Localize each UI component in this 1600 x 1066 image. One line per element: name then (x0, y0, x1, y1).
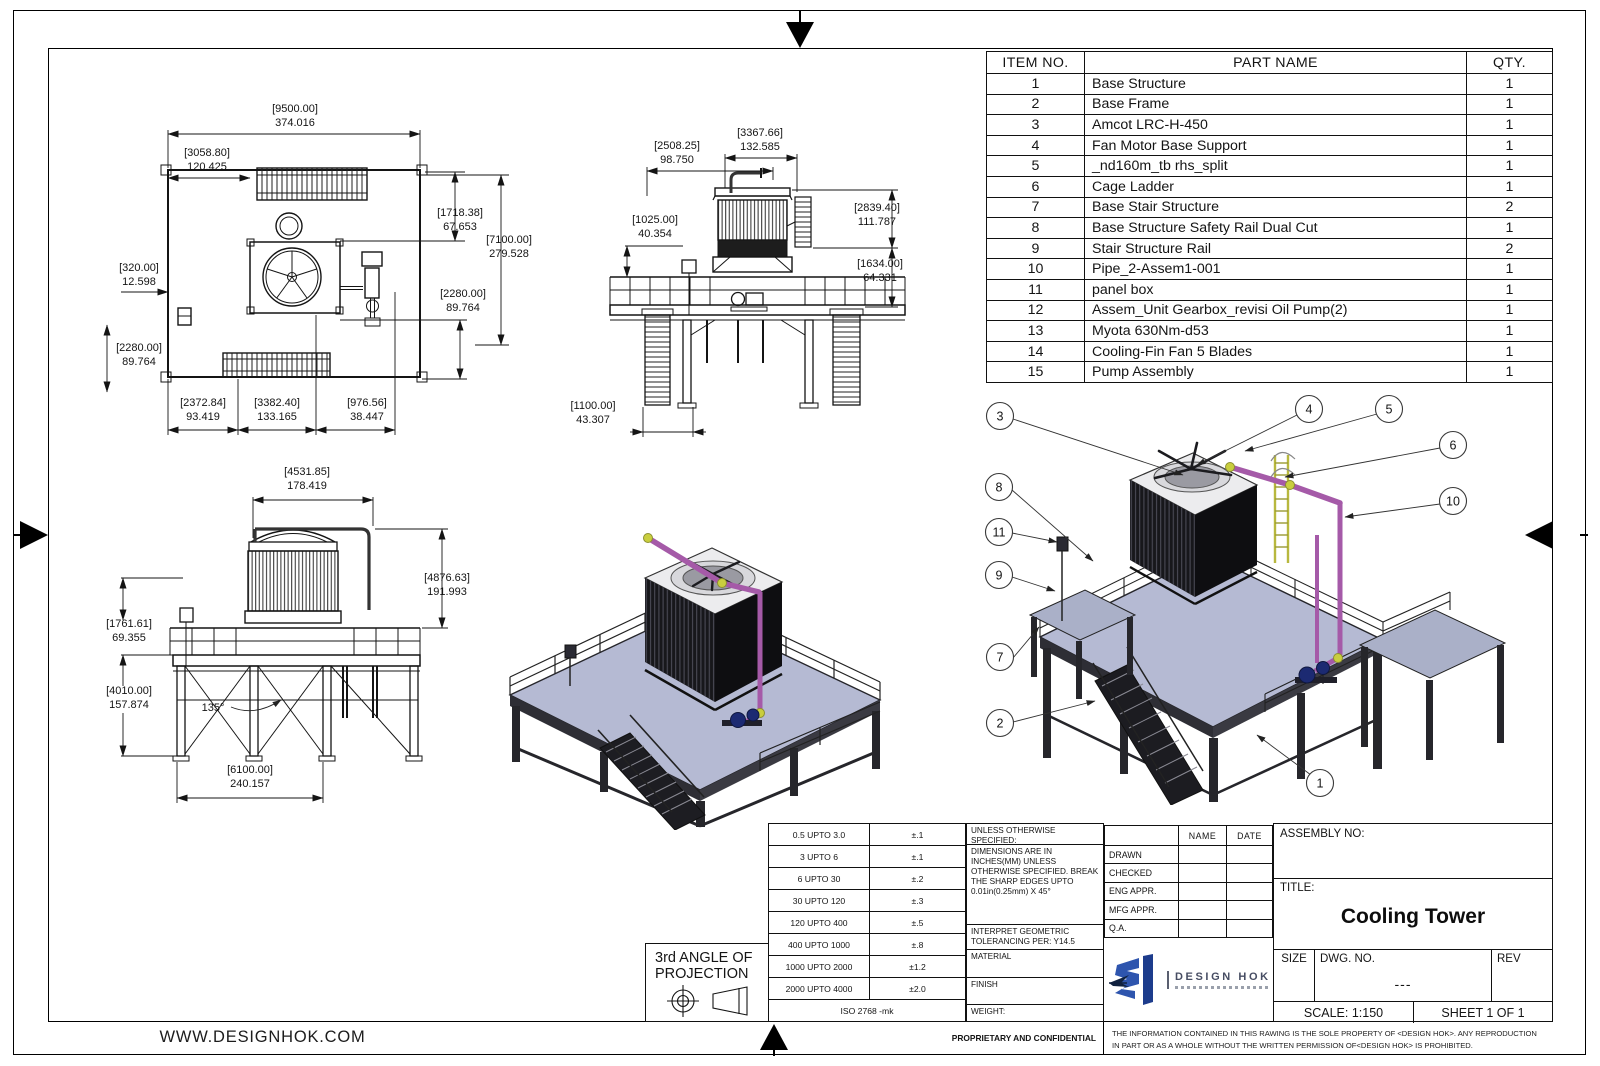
dwg-no-value: --- (1315, 976, 1491, 992)
dim-label: [3367.66] (737, 127, 783, 139)
registration-stem-left (13, 534, 21, 536)
disclaimer-line-2: IN PART OR AS A WHOLE WITHOUT THE WRITTE… (1112, 1040, 1548, 1052)
approval-row: Q.A. (1105, 919, 1272, 937)
tolerance-range: 6 UPTO 30 (769, 868, 869, 889)
dim-label: [2508.25] (654, 140, 700, 152)
table-row: 14 Cooling-Fin Fan 5 Blades 1 (987, 341, 1552, 362)
registration-stem-bottom (773, 1050, 775, 1056)
balloon-2: 2 (987, 710, 1014, 737)
part-qty: 1 (1466, 321, 1552, 341)
logo-tagline-decoration (1175, 986, 1271, 989)
tolerance-range: 1000 UPTO 2000 (769, 956, 869, 977)
dim-label: 93.419 (186, 411, 220, 423)
side-view: [4531.85] 178.419 [4876.63] 191.993 [176… (85, 450, 505, 810)
dim-label: [3058.80] (184, 147, 230, 159)
dim-label: [9500.00] (272, 103, 318, 115)
registration-arrow-bottom-icon (760, 1024, 788, 1050)
tolerance-range: 30 UPTO 120 (769, 890, 869, 911)
part-name: Pump Assembly (1084, 362, 1466, 382)
part-item-no: 13 (987, 321, 1084, 341)
approval-date-cell (1226, 920, 1272, 937)
scale-sheet-row: SCALE: 1:150 SHEET 1 OF 1 (1274, 1001, 1552, 1023)
balloon-1: 1 (1307, 770, 1334, 797)
table-row: 15 Pump Assembly 1 (987, 361, 1552, 382)
part-item-no: 4 (987, 136, 1084, 156)
dim-label: 279.528 (489, 248, 529, 260)
size-dwg-rev-row: SIZE DWG. NO. --- REV (1274, 949, 1552, 1001)
part-qty: 1 (1466, 301, 1552, 321)
isometric-view (460, 470, 900, 830)
approval-row: ENG APPR. (1105, 882, 1272, 900)
part-qty: 1 (1466, 177, 1552, 197)
footer-divider (1103, 1022, 1104, 1055)
tolerance-range: 400 UPTO 1000 (769, 934, 869, 955)
dim-label: [2372.84] (180, 397, 226, 409)
part-qty: 1 (1466, 259, 1552, 279)
balloon-number: 10 (1446, 495, 1460, 509)
registration-stem-right (1580, 534, 1588, 536)
part-qty: 1 (1466, 280, 1552, 300)
registration-stem-top (799, 11, 801, 22)
dim-label: [2839.40] (854, 202, 900, 214)
tolerance-table: 0.5 UPTO 3.0 ±.1 3 UPTO 6 ±.1 6 UPTO 30 … (768, 823, 966, 1022)
rev-label: REV (1497, 953, 1521, 965)
approval-date-cell (1226, 846, 1272, 863)
dim-label: 98.750 (660, 154, 694, 166)
note-material: MATERIAL (967, 949, 1103, 977)
part-item-no: 1 (987, 74, 1084, 94)
logo-text-block: DESIGN HOK (1167, 971, 1271, 989)
approval-date-cell (1226, 883, 1272, 900)
tolerance-range: 0.5 UPTO 3.0 (769, 824, 869, 845)
approval-header: NAME DATE (1105, 826, 1272, 845)
tolerance-value: ±.5 (869, 912, 965, 933)
dim-label: [1761.61] (106, 618, 152, 630)
design-hok-logo-icon (1107, 953, 1161, 1007)
tolerance-standard: ISO 2768 -mk (769, 1000, 965, 1021)
part-item-no: 8 (987, 218, 1084, 238)
dim-label: 64.331 (863, 272, 897, 284)
company-logo: DESIGN HOK (1105, 937, 1273, 1022)
part-qty: 1 (1466, 218, 1552, 238)
tolerance-value: ±.1 (869, 824, 965, 845)
approval-row: DRAWN (1105, 845, 1272, 863)
table-row: 2 Base Frame 1 (987, 94, 1552, 115)
proprietary-label: PROPRIETARY AND CONFIDENTIAL (938, 1033, 1096, 1043)
dim-label: [1100.00] (570, 400, 615, 412)
dim-label: 40.354 (638, 228, 672, 240)
tolerance-value: ±2.0 (869, 978, 965, 999)
approval-name-cell (1178, 846, 1226, 863)
approval-body: DRAWN CHECKED ENG APPR. MFG APPR. Q.A. (1105, 845, 1272, 937)
table-row: 4 Fan Motor Base Support 1 (987, 135, 1552, 156)
part-name: Fan Motor Base Support (1084, 136, 1466, 156)
balloon-6: 6 (1440, 432, 1467, 459)
plan-geometry (161, 165, 427, 382)
approval-blank-cell (1105, 826, 1178, 845)
dim-label: 374.016 (275, 117, 315, 129)
plan-view: [9500.00] 374.016 [3058.80] 120.425 [171… (95, 80, 555, 445)
approval-date-cell (1226, 901, 1272, 918)
title-label: TITLE: (1280, 882, 1315, 894)
approval-row: MFG APPR. (1105, 900, 1272, 918)
disclaimer-line-1: THE INFORMATION CONTAINED IN THIS RAWING… (1112, 1028, 1548, 1040)
assembly-no-label: ASSEMBLY NO: (1280, 828, 1365, 840)
part-qty: 1 (1466, 74, 1552, 94)
balloon-number: 11 (993, 526, 1006, 540)
disclaimer-text: THE INFORMATION CONTAINED IN THIS RAWING… (1112, 1028, 1548, 1052)
table-row: 5 _nd160m_tb rhs_split 1 (987, 155, 1552, 176)
part-name: Assem_Unit Gearbox_revisi Oil Pump(2) (1084, 301, 1466, 321)
dim-label: 132.585 (740, 141, 780, 153)
drawing-title: Cooling Tower (1274, 905, 1552, 929)
parts-table: ITEM NO. PART NAME QTY. 1 Base Structure… (986, 51, 1553, 383)
table-row: 8 Base Structure Safety Rail Dual Cut 1 (987, 217, 1552, 238)
part-name: Base Structure (1084, 74, 1466, 94)
table-row: 13 Myota 630Nm-d53 1 (987, 320, 1552, 341)
balloon-3: 3 (987, 403, 1014, 430)
balloon-number: 2 (997, 717, 1004, 731)
part-qty: 1 (1466, 115, 1552, 135)
approval-name-header: NAME (1178, 826, 1226, 845)
projection-label-line2: PROJECTION (655, 966, 768, 982)
part-qty: 1 (1466, 362, 1552, 382)
tolerance-value: ±.2 (869, 868, 965, 889)
balloon-5: 5 (1376, 396, 1403, 423)
tolerance-rows: 0.5 UPTO 3.0 ±.1 3 UPTO 6 ±.1 6 UPTO 30 … (769, 824, 965, 1000)
balloon-11: 11 (986, 519, 1013, 546)
title-block: ASSEMBLY NO: TITLE: Cooling Tower SIZE D… (1273, 823, 1553, 1022)
tolerance-row: 1000 UPTO 2000 ±1.2 (769, 956, 965, 978)
approval-table: NAME DATE DRAWN CHECKED ENG APPR. MFG AP… (1104, 825, 1273, 938)
dim-label: [976.56] (347, 397, 387, 409)
part-item-no: 15 (987, 362, 1084, 382)
ballooned-isometric-view: 3 4 5 6 10 8 11 9 7 2 1 (945, 385, 1553, 805)
dim-label: 12.598 (122, 276, 156, 288)
balloon-number: 9 (996, 569, 1003, 583)
part-item-no: 6 (987, 177, 1084, 197)
size-cell: SIZE (1274, 950, 1314, 1001)
col-header-part-name: PART NAME (1084, 52, 1466, 73)
dim-label: 89.764 (446, 302, 480, 314)
col-header-qty: QTY. (1466, 52, 1552, 73)
tolerance-value: ±1.2 (869, 956, 965, 977)
approval-role-label: MFG APPR. (1105, 901, 1178, 918)
tolerance-value: ±.3 (869, 890, 965, 911)
part-qty: 2 (1466, 239, 1552, 259)
table-row: 9 Stair Structure Rail 2 (987, 238, 1552, 259)
part-item-no: 12 (987, 301, 1084, 321)
part-name: Amcot LRC-H-450 (1084, 115, 1466, 135)
part-item-no: 11 (987, 280, 1084, 300)
rev-cell: REV (1491, 950, 1552, 1001)
note-finish: FINISH (967, 977, 1103, 1004)
table-row: 7 Base Stair Structure 2 (987, 197, 1552, 218)
balloon-9: 9 (986, 562, 1013, 589)
dim-label: 240.157 (230, 778, 270, 790)
dim-label: [3382.40] (254, 397, 300, 409)
part-name: panel box (1084, 280, 1466, 300)
dim-label: [2280.00] (440, 288, 486, 300)
balloon-number: 8 (996, 481, 1003, 495)
approval-name-cell (1178, 901, 1226, 918)
part-name: Base Structure Safety Rail Dual Cut (1084, 218, 1466, 238)
website-url: WWW.DESIGNHOK.COM (110, 1028, 415, 1047)
part-name: Base Frame (1084, 95, 1466, 115)
iso2-ladder (1271, 452, 1295, 563)
tolerance-value: ±.8 (869, 934, 965, 955)
side-geometry (170, 529, 422, 761)
table-row: 11 panel box 1 (987, 279, 1552, 300)
notes-column: UNLESS OTHERWISE SPECIFIED: DIMENSIONS A… (966, 823, 1104, 1022)
part-name: Stair Structure Rail (1084, 239, 1466, 259)
dim-label: 157.874 (109, 699, 149, 711)
dwg-no-label: DWG. NO. (1320, 953, 1375, 965)
dim-label: [2280.00] (116, 342, 162, 354)
approval-role-label: DRAWN (1105, 846, 1178, 863)
balloon-4: 4 (1296, 396, 1323, 423)
approval-date-header: DATE (1226, 826, 1272, 845)
dim-label: [4010.00] (106, 685, 152, 697)
balloon-number: 5 (1386, 403, 1393, 417)
tolerance-range: 2000 UPTO 4000 (769, 978, 869, 999)
part-qty: 1 (1466, 342, 1552, 362)
note-weight: WEIGHT: (967, 1004, 1103, 1021)
part-name: Cage Ladder (1084, 177, 1466, 197)
tolerance-row: 3 UPTO 6 ±.1 (769, 846, 965, 868)
angle-label: 135° (202, 702, 225, 714)
assembly-no-cell: ASSEMBLY NO: (1274, 824, 1552, 878)
table-row: 12 Assem_Unit Gearbox_revisi Oil Pump(2)… (987, 300, 1552, 321)
balloon-number: 4 (1306, 403, 1313, 417)
approval-role-label: CHECKED (1105, 864, 1178, 881)
approval-role-label: ENG APPR. (1105, 883, 1178, 900)
tolerance-range: 120 UPTO 400 (769, 912, 869, 933)
approval-name-cell (1178, 864, 1226, 881)
part-item-no: 7 (987, 198, 1084, 218)
tolerance-row: 30 UPTO 120 ±.3 (769, 890, 965, 912)
tolerance-row: 400 UPTO 1000 ±.8 (769, 934, 965, 956)
parts-table-header: ITEM NO. PART NAME QTY. (987, 52, 1552, 73)
projection-label-line1: 3rd ANGLE OF (655, 950, 768, 966)
balloon-number: 6 (1450, 439, 1457, 453)
part-name: _nd160m_tb rhs_split (1084, 156, 1466, 176)
dim-label: [6100.00] (227, 764, 273, 776)
part-item-no: 3 (987, 115, 1084, 135)
registration-arrow-top-icon (786, 22, 814, 48)
tolerance-value: ±.1 (869, 846, 965, 867)
table-row: 6 Cage Ladder 1 (987, 176, 1552, 197)
part-qty: 1 (1466, 95, 1552, 115)
table-row: 3 Amcot LRC-H-450 1 (987, 114, 1552, 135)
approval-row: CHECKED (1105, 863, 1272, 881)
note-interpret: INTERPRET GEOMETRIC TOLERANCING PER: Y14… (967, 924, 1103, 949)
dim-label: 89.764 (122, 356, 156, 368)
dim-label: 69.355 (112, 632, 146, 644)
col-header-item-no: ITEM NO. (987, 52, 1084, 73)
dim-label: 43.307 (576, 414, 610, 426)
part-item-no: 2 (987, 95, 1084, 115)
dim-label: [7100.00] (486, 234, 532, 246)
dim-label: [320.00] (119, 262, 159, 274)
balloon-number: 1 (1317, 777, 1324, 791)
sheet-value: SHEET 1 OF 1 (1413, 1002, 1552, 1023)
tolerance-row: 2000 UPTO 4000 ±2.0 (769, 978, 965, 1000)
part-name: Pipe_2-Assem1-001 (1084, 259, 1466, 279)
part-name: Myota 630Nm-d53 (1084, 321, 1466, 341)
dim-label: [1718.38] (437, 207, 483, 219)
part-item-no: 10 (987, 259, 1084, 279)
dim-label: 111.787 (858, 216, 896, 228)
balloon-10: 10 (1440, 488, 1467, 515)
approval-date-cell (1226, 864, 1272, 881)
balloon-number: 7 (997, 651, 1004, 665)
dim-label: [4531.85] (284, 466, 330, 478)
front-view: [3367.66] 132.585 [2508.25] 98.750 [1025… (555, 100, 955, 450)
note-dimensions: DIMENSIONS ARE IN INCHES(MM) UNLESS OTHE… (967, 844, 1103, 924)
tolerance-row: 0.5 UPTO 3.0 ±.1 (769, 824, 965, 846)
logo-text: DESIGN HOK (1175, 971, 1271, 983)
projection-box: 3rd ANGLE OF PROJECTION (645, 943, 769, 1022)
dim-label: 120.425 (187, 161, 227, 173)
registration-arrow-left-icon (20, 521, 48, 549)
scale-value: SCALE: 1:150 (1274, 1002, 1413, 1023)
dim-label: 67.653 (443, 221, 477, 233)
part-item-no: 9 (987, 239, 1084, 259)
dim-label: [1634.00] (857, 258, 903, 270)
dim-label: 38.447 (350, 411, 384, 423)
dwg-no-cell: DWG. NO. --- (1314, 950, 1491, 1001)
dim-label: 133.165 (257, 411, 297, 423)
table-row: 1 Base Structure 1 (987, 73, 1552, 94)
note-unless: UNLESS OTHERWISE SPECIFIED: (967, 824, 1103, 844)
part-qty: 2 (1466, 198, 1552, 218)
part-item-no: 14 (987, 342, 1084, 362)
dim-label: 178.419 (287, 480, 327, 492)
tolerance-range: 3 UPTO 6 (769, 846, 869, 867)
approval-name-cell (1178, 920, 1226, 937)
approval-name-cell (1178, 883, 1226, 900)
tolerance-row: 6 UPTO 30 ±.2 (769, 868, 965, 890)
approval-role-label: Q.A. (1105, 920, 1178, 937)
third-angle-projection-icon (655, 984, 765, 1018)
title-cell: TITLE: Cooling Tower (1274, 878, 1552, 949)
balloon-8: 8 (986, 474, 1013, 501)
parts-table-body: 1 Base Structure 1 2 Base Frame 1 3 Amco… (987, 73, 1552, 382)
dim-label: [1025.00] (632, 214, 678, 226)
part-qty: 1 (1466, 136, 1552, 156)
part-name: Base Stair Structure (1084, 198, 1466, 218)
part-name: Cooling-Fin Fan 5 Blades (1084, 342, 1466, 362)
part-qty: 1 (1466, 156, 1552, 176)
balloon-number: 3 (997, 410, 1004, 424)
size-label: SIZE (1281, 953, 1307, 965)
table-row: 10 Pipe_2-Assem1-001 1 (987, 258, 1552, 279)
balloon-7: 7 (987, 644, 1014, 671)
part-item-no: 5 (987, 156, 1084, 176)
tolerance-row: 120 UPTO 400 ±.5 (769, 912, 965, 934)
